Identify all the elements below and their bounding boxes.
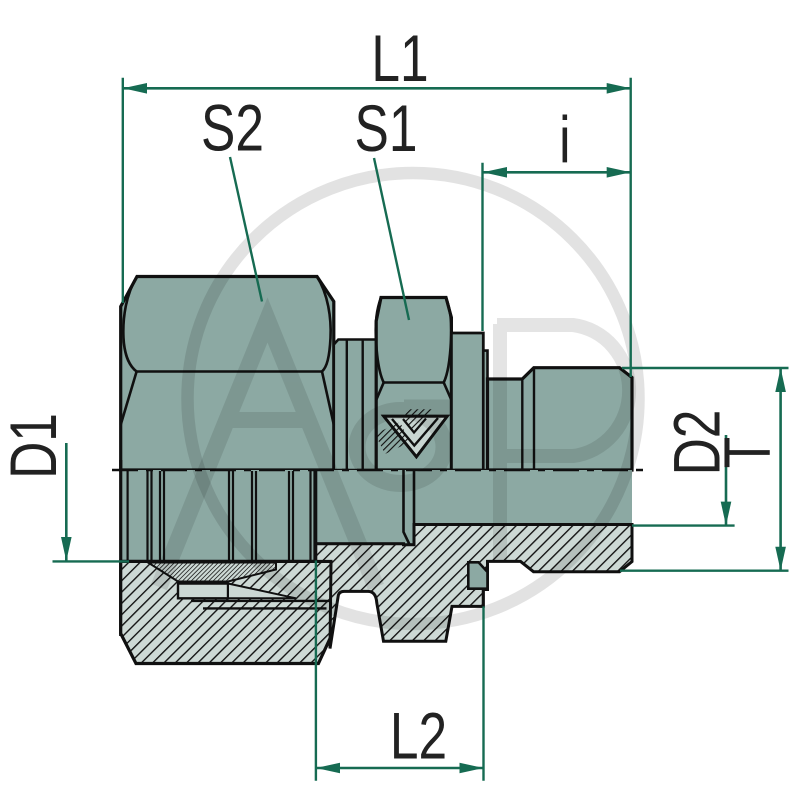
svg-text:L1: L1 (371, 21, 428, 96)
svg-text:S1: S1 (355, 91, 418, 166)
svg-text:T: T (710, 437, 785, 468)
svg-text:i: i (559, 102, 570, 177)
svg-text:S2: S2 (201, 90, 264, 165)
svg-text:L2: L2 (390, 698, 447, 773)
svg-text:D1: D1 (0, 413, 70, 479)
